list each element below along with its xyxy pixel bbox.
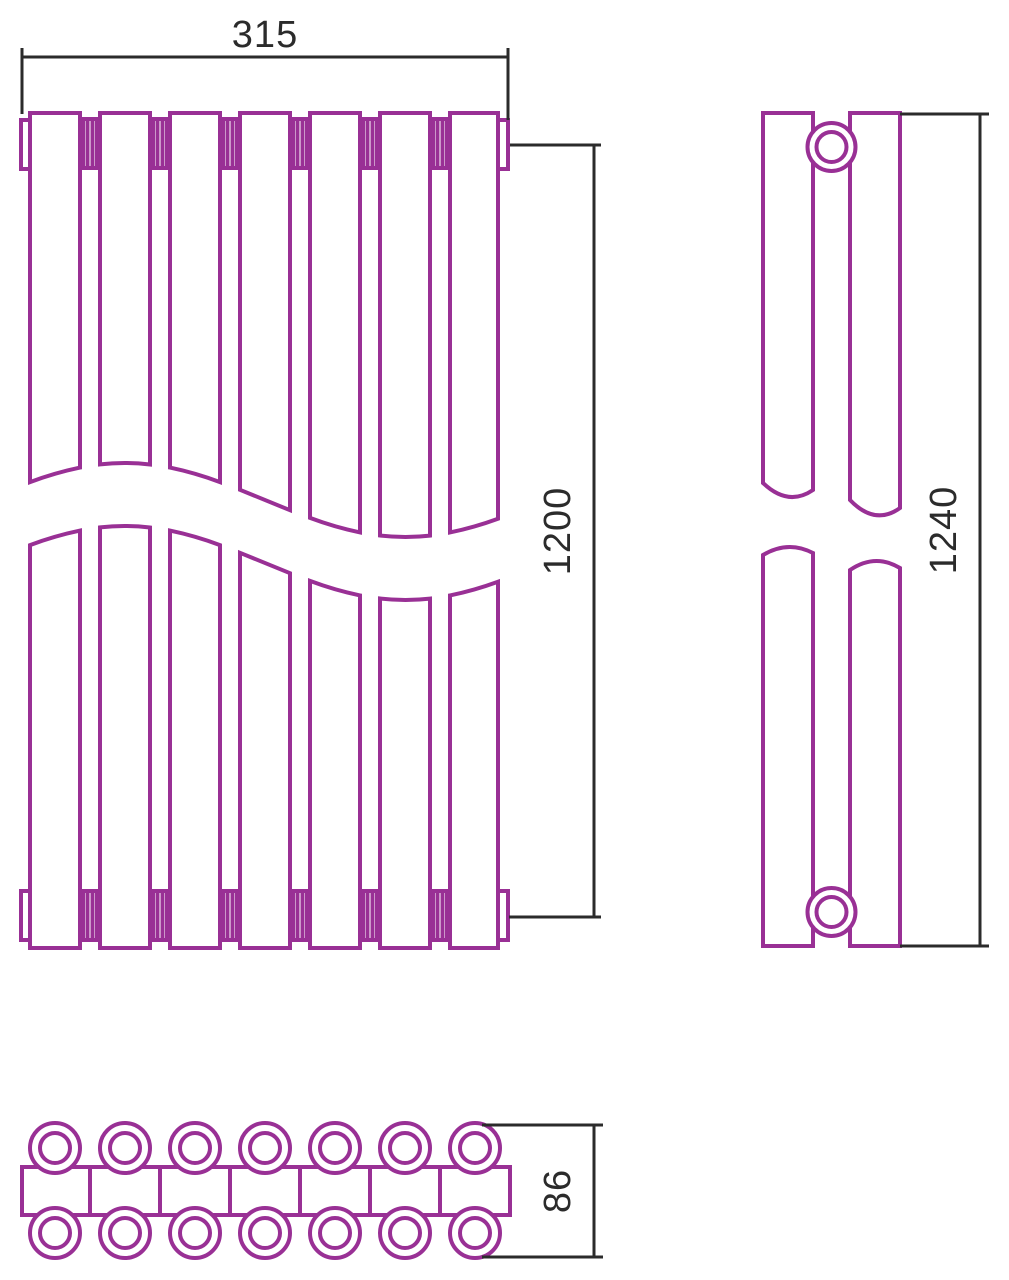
dimension-lines <box>22 48 989 1257</box>
dim-width <box>22 48 508 120</box>
radiator-technical-drawing: 315 1200 1240 86 <box>0 0 1009 1280</box>
front-sections-lower <box>30 526 498 948</box>
dim-depth-label: 86 <box>537 1169 579 1213</box>
drawing-canvas: 315 1200 1240 86 <box>0 0 1009 1280</box>
side-pipe-boss-top <box>808 123 856 171</box>
dim-axis-height-label: 1200 <box>537 487 579 576</box>
side-columns <box>763 113 900 946</box>
top-view <box>22 1123 510 1258</box>
side-view <box>763 113 900 946</box>
front-view <box>21 113 508 948</box>
side-pipe-boss-bottom <box>808 888 856 936</box>
dim-overall-height-label: 1240 <box>923 486 965 575</box>
dim-width-label: 315 <box>232 14 298 56</box>
front-sections-upper <box>30 113 498 537</box>
